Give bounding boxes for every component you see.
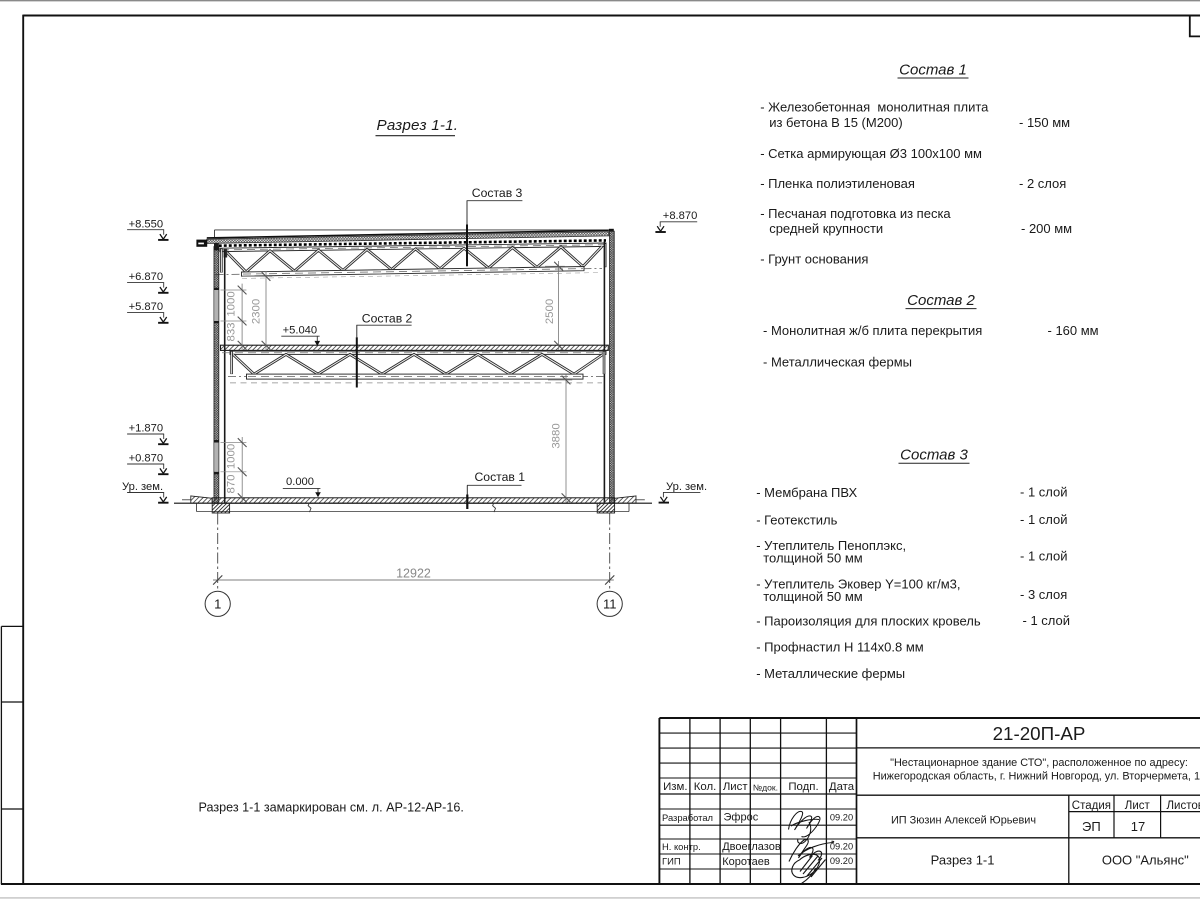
svg-text:Состав 3: Состав 3 [900,447,968,464]
svg-text:Изм.: Изм. [663,781,687,793]
svg-text:- Пленка полиэтиленовая: - Пленка полиэтиленовая [760,176,915,191]
svg-text:- Геотекстиль: - Геотекстиль [756,512,837,527]
svg-text:средней крупности: средней крупности [769,221,883,236]
svg-text:Состав 2: Состав 2 [362,311,413,325]
svg-text:Состав 1: Состав 1 [475,470,526,484]
svg-text:- 1 слой: - 1 слой [1020,512,1068,527]
svg-text:Разрез 1-1: Разрез 1-1 [931,852,995,867]
svg-text:1: 1 [214,597,221,612]
svg-text:- 1 слой: - 1 слой [1020,549,1068,564]
svg-text:толщиной 50 мм: толщиной 50 мм [763,551,863,566]
svg-text:09.20: 09.20 [830,812,853,822]
svg-text:- 3 слоя: - 3 слоя [1020,587,1067,602]
svg-text:Разрез 1-1 замаркирован см. л.: Разрез 1-1 замаркирован см. л. АР-12-АР-… [199,801,464,815]
svg-text:870: 870 [226,474,238,493]
svg-text:Лист: Лист [723,781,749,793]
svg-text:Лист: Лист [1125,800,1151,812]
svg-text:Нижегородская область, г. Нижн: Нижегородская область, г. Нижний Новгоро… [873,770,1200,782]
svg-text:- Монолитная ж/б плита перекры: - Монолитная ж/б плита перекрытия [763,323,982,338]
svg-text:Листов: Листов [1167,800,1200,812]
svg-text:- Металлическая фермы: - Металлическая фермы [763,355,912,370]
svg-text:- 160 мм: - 160 мм [1048,323,1099,338]
svg-text:Кол.: Кол. [694,781,717,793]
svg-text:Разработал: Разработал [662,812,713,823]
svg-text:Ур. зем.: Ур. зем. [666,481,707,493]
svg-text:833: 833 [225,322,237,341]
svg-text:+0.870: +0.870 [129,453,164,465]
svg-text:Эфрос: Эфрос [724,812,759,824]
svg-text:+5.040: +5.040 [283,324,318,336]
svg-text:Состав 1: Состав 1 [899,61,967,78]
svg-text:Стадия: Стадия [1072,800,1111,812]
svg-text:- 150 мм: - 150 мм [1019,115,1070,130]
svg-text:№док.: №док. [753,783,778,793]
svg-text:Состав 2: Состав 2 [907,292,975,309]
svg-text:Двоеглазов: Двоеглазов [722,841,781,853]
svg-text:ГИП: ГИП [662,856,681,867]
svg-text:2300: 2300 [251,299,263,324]
svg-text:Состав 3: Состав 3 [472,186,523,200]
svg-text:+6.870: +6.870 [129,271,164,283]
svg-text:ЭП: ЭП [1082,819,1101,834]
svg-text:из бетона В 15 (М200): из бетона В 15 (М200) [769,115,903,130]
svg-text:3880: 3880 [550,423,562,448]
svg-text:Дата: Дата [829,781,855,793]
svg-text:- Сетка армирующая Ø3 100х100: - Сетка армирующая Ø3 100х100 мм [760,146,982,161]
svg-text:ИП Зюзин Алексей Юрьевич: ИП Зюзин Алексей Юрьевич [891,815,1036,827]
svg-text:1000: 1000 [225,291,237,316]
svg-text:+8.550: +8.550 [129,218,164,230]
svg-text:- Пароизоляция для плоских кро: - Пароизоляция для плоских кровель [756,614,981,629]
svg-text:- Песчаная подготовка из песка: - Песчаная подготовка из песка [760,206,951,221]
svg-text:- 200 мм: - 200 мм [1021,221,1072,236]
svg-text:- Профнастил Н 114х0.8 мм: - Профнастил Н 114х0.8 мм [756,639,924,654]
svg-text:17: 17 [1131,819,1145,834]
svg-text:Н. контр.: Н. контр. [662,841,701,852]
svg-text:+1.870: +1.870 [129,423,164,435]
svg-text:Ур. зем.: Ур. зем. [122,481,163,493]
svg-text:09.20: 09.20 [830,856,853,866]
svg-text:- Металлические фермы: - Металлические фермы [756,666,905,681]
svg-text:- 2 слоя: - 2 слоя [1019,176,1066,191]
svg-text:0.000: 0.000 [286,476,314,488]
svg-text:Разрез 1-1.: Разрез 1-1. [377,117,459,134]
svg-text:09.20: 09.20 [830,842,853,852]
svg-text:- Мембрана ПВХ: - Мембрана ПВХ [756,485,857,500]
svg-text:"Нестационарное здание СТО", р: "Нестационарное здание СТО", расположенн… [890,757,1188,769]
svg-text:- Грунт основания: - Грунт основания [760,252,868,267]
svg-text:Подп.: Подп. [788,781,818,793]
svg-text:+8.870: +8.870 [663,210,698,222]
svg-text:+5.870: +5.870 [129,301,164,313]
svg-text:- 1 слой: - 1 слой [1020,485,1068,500]
svg-text:- 1 слой: - 1 слой [1023,613,1071,628]
svg-text:2500: 2500 [544,299,556,324]
svg-text:12922: 12922 [396,567,431,581]
svg-text:21-20П-АР: 21-20П-АР [993,723,1086,744]
svg-text:- Железобетонная монолитная п: - Железобетонная монолитная плита [760,100,989,115]
svg-text:толщиной 50 мм: толщиной 50 мм [763,589,863,604]
svg-text:1000: 1000 [226,444,238,469]
svg-text:11: 11 [603,597,617,612]
svg-text:ООО "Альянс": ООО "Альянс" [1102,852,1189,867]
svg-text:Коротаев: Коротаев [722,856,770,868]
